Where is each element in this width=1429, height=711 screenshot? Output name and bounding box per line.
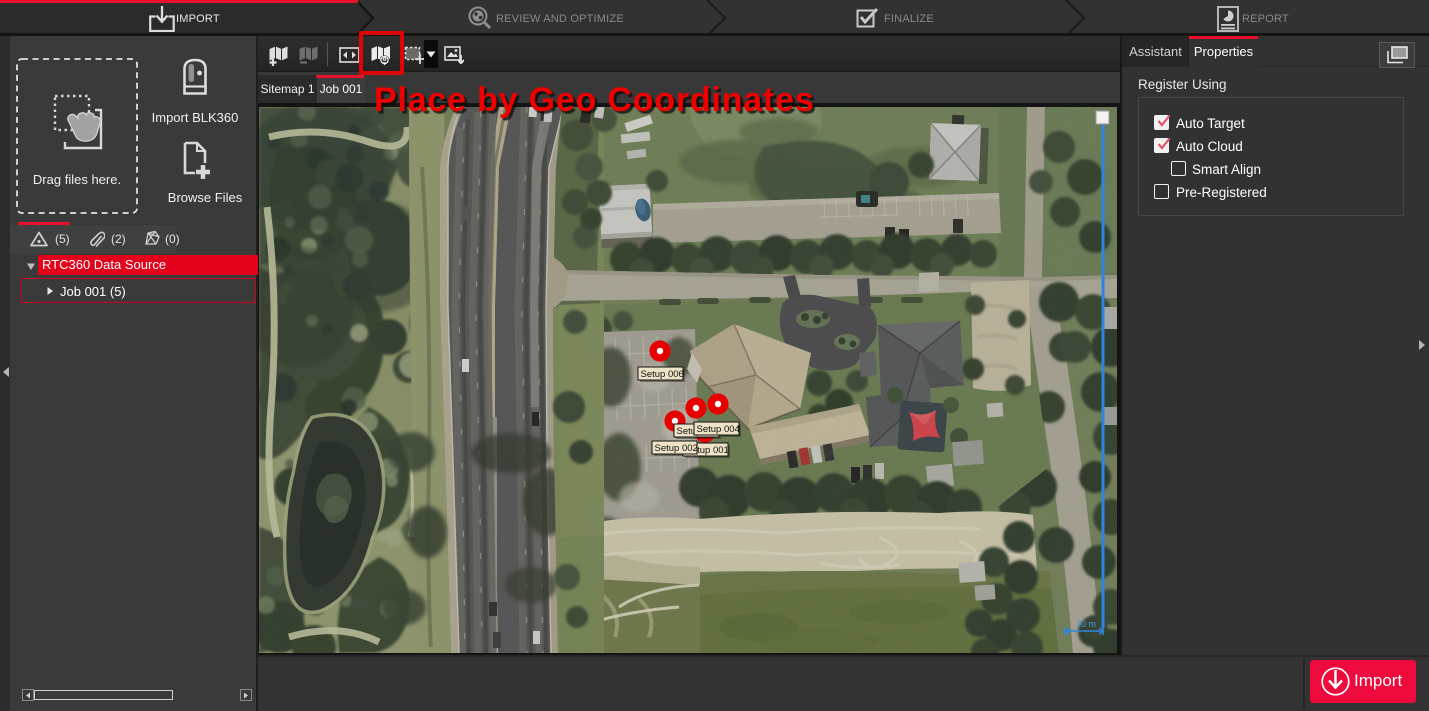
- svg-text:Setup 004: Setup 004: [697, 424, 740, 435]
- svg-text:10 m: 10 m: [1076, 619, 1096, 629]
- svg-text:Setup 006: Setup 006: [641, 369, 684, 380]
- svg-text:Setup 002: Setup 002: [655, 443, 698, 454]
